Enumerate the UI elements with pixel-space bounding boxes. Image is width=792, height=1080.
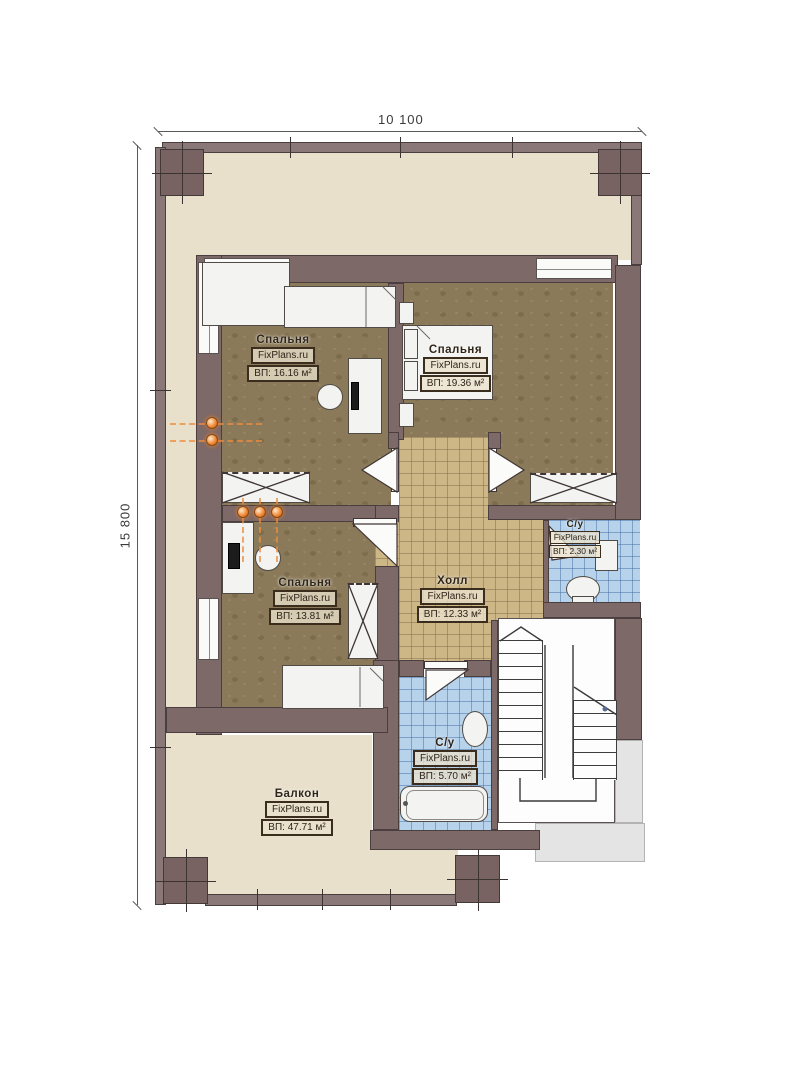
room-label-bedroom-top-left: Спальня FixPlans.ru ВП: 16.16 м² xyxy=(228,334,338,382)
wardrobe xyxy=(530,473,617,503)
wall-tick xyxy=(512,137,513,158)
door-leaf xyxy=(424,661,468,669)
window xyxy=(198,598,219,660)
wall-tick xyxy=(257,889,258,910)
room-name: С/у xyxy=(435,737,454,749)
watermark: FixPlans.ru xyxy=(273,590,337,607)
room-label-hall: Холл FixPlans.ru ВП: 12.33 м² xyxy=(405,575,500,623)
room-label-bathroom-bottom: С/у FixPlans.ru ВП: 5.70 м² xyxy=(400,737,490,785)
landing-zone xyxy=(615,740,643,823)
wall xyxy=(615,618,642,740)
window-bay xyxy=(202,262,290,326)
wall xyxy=(464,660,491,677)
landing-zone xyxy=(535,823,645,862)
wall xyxy=(370,830,540,850)
wall-tick xyxy=(150,390,171,391)
room-area: ВП: 5.70 м² xyxy=(412,768,478,785)
door-leaf xyxy=(489,448,497,492)
dimension-height-label: 15 800 xyxy=(117,503,132,549)
computer-monitor xyxy=(228,543,240,569)
room-area: ВП: 47.71 м² xyxy=(261,819,332,836)
watermark: FixPlans.ru xyxy=(251,347,315,364)
wall xyxy=(399,660,424,677)
watermark: FixPlans.ru xyxy=(265,801,329,818)
terrace-floor xyxy=(166,150,640,260)
terrace-rail-top xyxy=(162,142,642,153)
hall-floor xyxy=(399,622,491,662)
room-name: С/у xyxy=(566,519,583,530)
wall xyxy=(375,566,399,674)
wall xyxy=(166,707,388,733)
wall-lamp-icon xyxy=(206,434,218,446)
toilet-tank xyxy=(572,596,594,603)
computer-monitor xyxy=(351,382,359,410)
wall xyxy=(488,432,501,449)
nightstand xyxy=(399,403,414,427)
room-label-bedroom-top-right: Спальня FixPlans.ru ВП: 19.36 м² xyxy=(408,344,503,392)
dimension-width-label: 10 100 xyxy=(378,112,424,127)
room-label-bedroom-bottom-left: Спальня FixPlans.ru ВП: 13.81 м² xyxy=(250,577,360,625)
wall xyxy=(491,620,498,830)
wall-lamp-icon xyxy=(254,506,266,518)
office-chair xyxy=(317,384,343,410)
room-area: ВП: 12.33 м² xyxy=(417,606,488,623)
room-name: Балкон xyxy=(275,788,320,800)
stair-flight xyxy=(498,640,543,780)
watermark: FixPlans.ru xyxy=(420,588,484,605)
room-name: Холл xyxy=(437,575,468,587)
column xyxy=(598,149,642,196)
column xyxy=(160,149,204,196)
room-name: Спальня xyxy=(256,334,309,346)
terrace-rail-right xyxy=(631,191,642,265)
room-area: ВП: 13.81 м² xyxy=(269,608,340,625)
bathtub-inner xyxy=(406,790,484,820)
wall-tick xyxy=(150,747,171,748)
balcony-floor xyxy=(372,850,458,896)
terrace-rail-left xyxy=(155,147,166,905)
room-name: Спальня xyxy=(278,577,331,589)
wall-lamp-icon xyxy=(271,506,283,518)
wall-tick xyxy=(400,137,401,158)
room-area: ВП: 16.16 м² xyxy=(247,365,318,382)
room-area: ВП: 19.36 м² xyxy=(420,375,491,392)
nightstand xyxy=(399,302,414,324)
column xyxy=(163,857,208,904)
stair-flight xyxy=(573,700,617,780)
wall xyxy=(615,265,641,520)
window xyxy=(536,258,612,279)
bed xyxy=(284,286,396,328)
room-area: ВП: 2.30 м² xyxy=(549,545,601,558)
terrace-rail-bottom xyxy=(205,894,457,906)
hall-corridor-floor xyxy=(399,437,488,507)
wardrobe xyxy=(222,472,310,503)
column xyxy=(455,855,500,903)
room-label-balcony: Балкон FixPlans.ru ВП: 47.71 м² xyxy=(242,788,352,836)
wall xyxy=(543,602,641,618)
room-name: Спальня xyxy=(429,344,482,356)
floor-plan: 10 100 15 800 xyxy=(0,0,792,1080)
wall-tick xyxy=(322,889,323,910)
bathtub-faucet xyxy=(403,801,408,806)
watermark: FixPlans.ru xyxy=(423,357,487,374)
door-leaf xyxy=(353,518,397,527)
door-opening xyxy=(375,522,399,568)
wall xyxy=(388,432,399,449)
wall-lamp-icon xyxy=(206,417,218,429)
terrace-floor xyxy=(166,258,196,736)
door-leaf xyxy=(391,448,399,492)
room-label-bathroom-top: С/у FixPlans.ru ВП: 2.30 м² xyxy=(538,519,612,558)
bed xyxy=(282,665,384,709)
wall-lamp-icon xyxy=(237,506,249,518)
watermark: FixPlans.ru xyxy=(550,531,601,544)
dimension-width-line xyxy=(158,131,642,132)
wall-tick xyxy=(390,889,391,910)
wall-tick xyxy=(290,137,291,158)
dimension-height-line xyxy=(137,145,138,905)
watermark: FixPlans.ru xyxy=(413,750,477,767)
